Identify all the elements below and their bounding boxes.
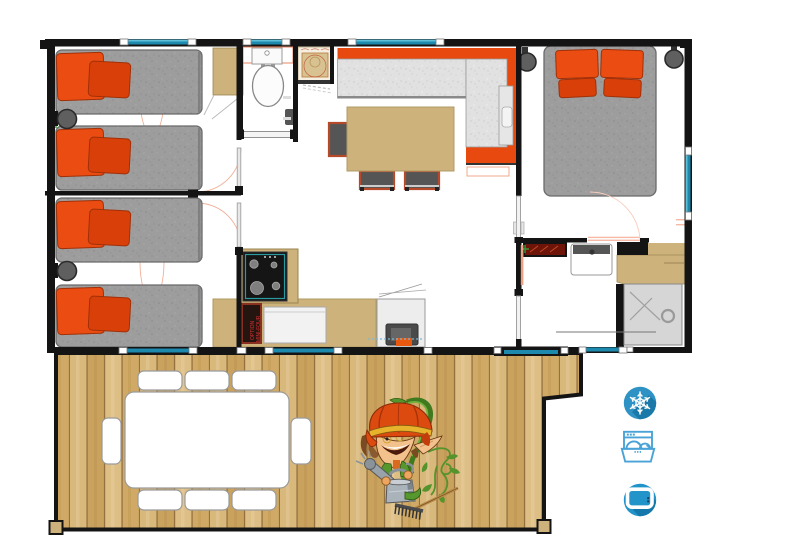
svg-text:MINI-FOUR: MINI-FOUR (256, 315, 262, 342)
